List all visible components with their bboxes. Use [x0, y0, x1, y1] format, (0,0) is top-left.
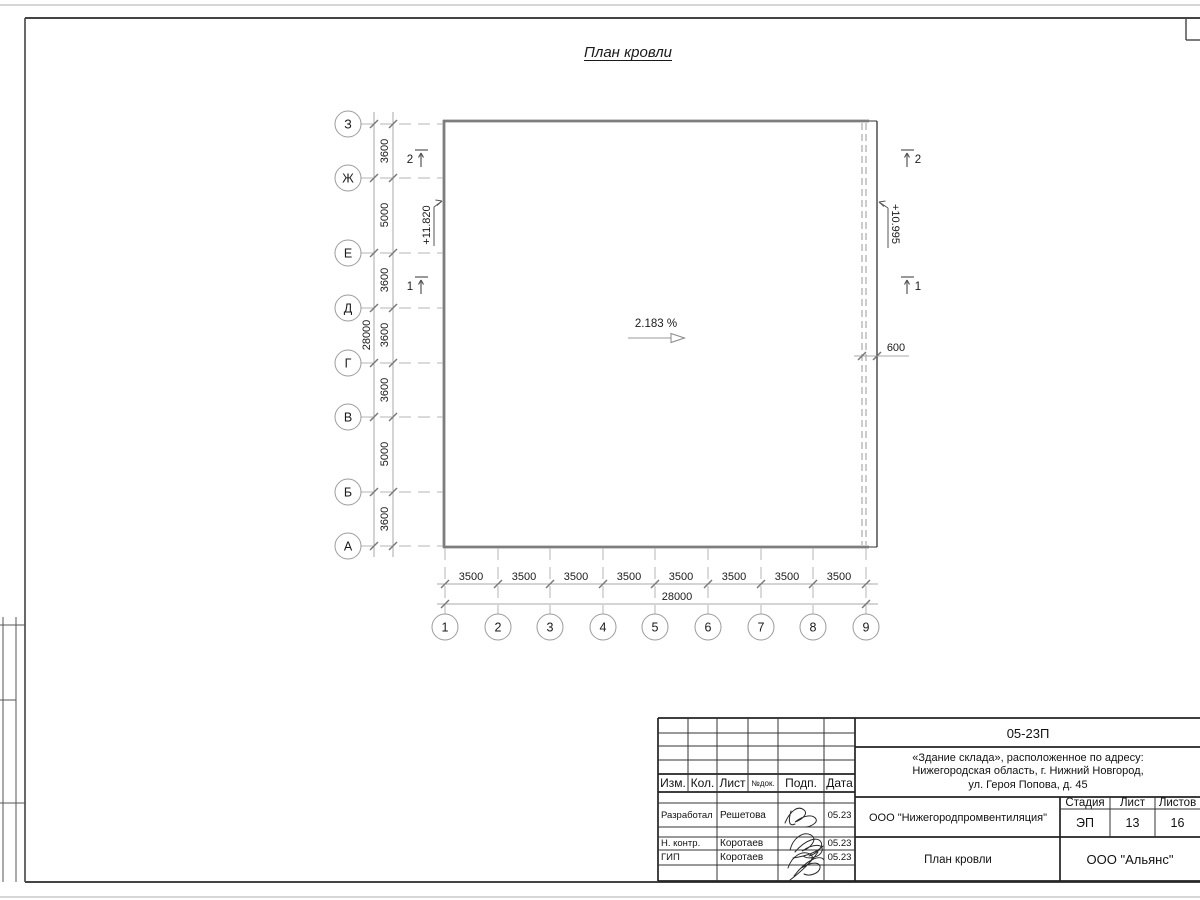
titleblock-company: ООО "Нижегородпромвентиляция" — [856, 798, 1060, 837]
rev-header-data: Дата — [824, 774, 855, 792]
elevation-value: +10.995 — [889, 204, 901, 244]
drawing-title: План кровли — [528, 44, 728, 61]
axis-label: А — [344, 540, 353, 554]
rev-header-podp: Подп. — [778, 774, 824, 792]
rev-header-izm: Изм. — [658, 774, 688, 792]
axis-label: 2 — [495, 621, 502, 635]
rev-header-ndok: №док. — [748, 774, 778, 792]
project-line-2: Нижегородская область, г. Нижний Новгоро… — [912, 765, 1143, 779]
dim-text: 3500 — [564, 571, 588, 583]
elevation-mark-left: +11.820 — [421, 200, 442, 246]
section-number: 2 — [407, 154, 413, 166]
elevation-value: +11.820 — [421, 205, 433, 244]
bottom-axis-grid: 1 2 3 4 5 6 7 8 9 — [432, 548, 879, 640]
dim-text: 3600 — [379, 139, 391, 163]
dim-text: 3600 — [379, 323, 391, 347]
signature-razrabotal — [785, 808, 816, 827]
sheet-header: Лист — [1110, 796, 1155, 809]
dim-text: 600 — [887, 342, 905, 354]
staff-date: 05.23 — [824, 850, 855, 865]
staff-name: Решетова — [720, 803, 777, 827]
axis-label: Д — [344, 302, 353, 316]
staff-role: ГИП — [661, 850, 716, 865]
elevation-mark-right: +10.995 — [879, 201, 901, 248]
slope-annotation: 2.183 % — [628, 318, 685, 343]
dim-text: 3600 — [379, 378, 391, 402]
rev-header-kol: Кол. — [688, 774, 717, 792]
dim-text: 5000 — [379, 203, 391, 227]
signature-gip — [788, 852, 824, 880]
bottom-dimension-chain: 3500 3500 3500 3500 3500 3500 3500 3500 … — [437, 571, 878, 608]
section-mark-right-bottom: 1 — [901, 277, 921, 294]
dim-text: 3500 — [617, 571, 641, 583]
drawing-sheet: З Ж Е Д Г В Б А 3600 5000 3600 3600 3600 — [0, 0, 1200, 900]
project-line-1: «Здание склада», расположенное по адресу… — [912, 752, 1143, 766]
left-dimension-chain: 3600 5000 3600 3600 3600 5000 3600 28000 — [361, 112, 397, 557]
staff-date: 05.23 — [824, 837, 855, 850]
corner-stamp-box — [1186, 18, 1200, 40]
dim-text: 3600 — [379, 268, 391, 292]
rev-header-list: Лист — [717, 774, 748, 792]
dim-total-text: 28000 — [662, 591, 693, 603]
axis-label: Е — [344, 247, 352, 261]
sheets-value: 16 — [1155, 809, 1200, 837]
section-number: 1 — [407, 281, 413, 293]
axis-label: Г — [345, 357, 352, 371]
titleblock-project: «Здание склада», расположенное по адресу… — [856, 748, 1200, 796]
sheets-header: Листов — [1155, 796, 1200, 809]
axis-label: 3 — [547, 621, 554, 635]
axis-label: 9 — [863, 621, 870, 635]
section-number: 2 — [915, 154, 921, 166]
stage-value: ЭП — [1060, 809, 1110, 837]
section-mark-right-top: 2 — [901, 150, 921, 167]
axis-label: Б — [344, 486, 352, 500]
dim-text: 5000 — [379, 442, 391, 466]
staff-name: Коротаев — [720, 850, 777, 865]
dim-text: 3500 — [827, 571, 851, 583]
sheet-value: 13 — [1110, 809, 1155, 837]
axis-label: 7 — [758, 621, 765, 635]
axis-label: 1 — [442, 621, 449, 635]
staff-name: Коротаев — [720, 837, 777, 850]
axis-label: 4 — [600, 621, 607, 635]
titleblock-sheet-title: План кровли — [856, 838, 1060, 881]
dim-text: 3500 — [669, 571, 693, 583]
titleblock-doc-code: 05-23П — [856, 719, 1200, 747]
dim-text: 3600 — [379, 507, 391, 531]
side-stamp-lines — [0, 617, 25, 882]
titleblock-org: ООО "Альянс" — [1060, 838, 1200, 881]
axis-label: 6 — [705, 621, 712, 635]
dim-text: 3500 — [459, 571, 483, 583]
project-line-3: ул. Героя Попова, д. 45 — [968, 779, 1087, 793]
roof-parapet-dashed — [862, 123, 866, 545]
section-mark-left-top: 2 — [407, 150, 428, 167]
section-number: 1 — [915, 281, 921, 293]
section-mark-left-bottom: 1 — [407, 277, 428, 294]
dim-text: 3500 — [512, 571, 536, 583]
dim-total-text: 28000 — [361, 320, 373, 351]
staff-role: Н. контр. — [661, 837, 716, 850]
dim-text: 3500 — [722, 571, 746, 583]
dim-text: 3500 — [775, 571, 799, 583]
axis-label: Ж — [342, 172, 354, 186]
stage-header: Стадия — [1060, 796, 1110, 809]
axis-label: В — [344, 411, 352, 425]
roof-outline — [443, 120, 877, 548]
slope-label: 2.183 % — [635, 318, 677, 330]
axis-label: 8 — [810, 621, 817, 635]
axis-label: З — [344, 118, 352, 132]
axis-label: 5 — [652, 621, 659, 635]
staff-role: Разработал — [661, 803, 716, 827]
slope-arrow-icon — [671, 334, 685, 343]
staff-date: 05.23 — [824, 803, 855, 827]
signatures — [785, 808, 824, 880]
